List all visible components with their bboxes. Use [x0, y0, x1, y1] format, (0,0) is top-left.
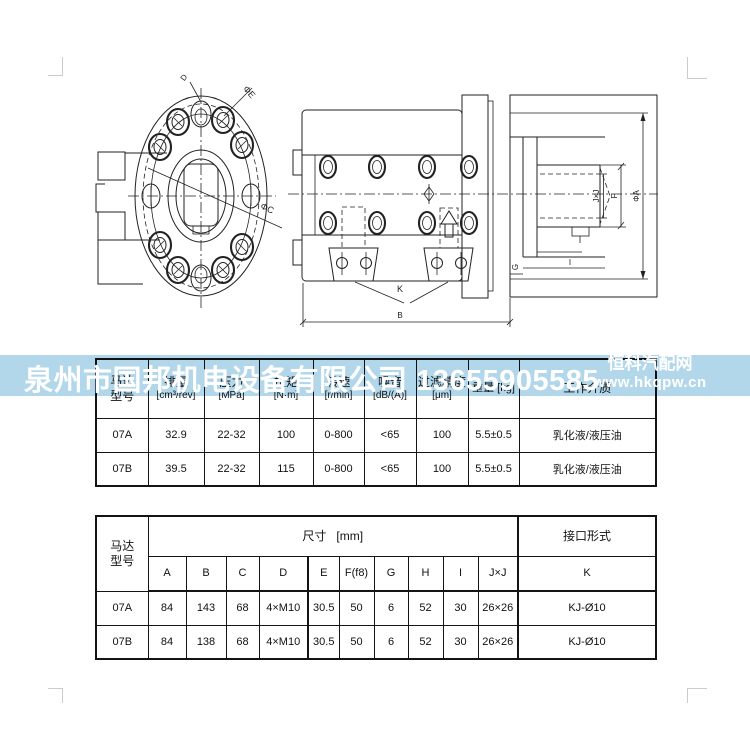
cell-B: 138: [186, 625, 226, 659]
header-unit: [r/min]: [325, 390, 353, 403]
dim-header-row-1: 马达型号 尺寸[mm] 接口形式: [96, 516, 656, 556]
cell-torque: 115: [259, 452, 313, 486]
dim-label-d: D: [179, 72, 190, 82]
header-text: 重量 [kg]: [472, 382, 515, 396]
cell-model: 07B: [96, 625, 148, 659]
header-unit: [MPa]: [218, 390, 244, 403]
cell-F: 50: [339, 625, 374, 659]
cell-G: 6: [374, 591, 408, 625]
cell-F: 50: [339, 591, 374, 625]
column-header-weight: 重量 [kg]: [468, 359, 519, 418]
cell-JxJ: 26×26: [478, 625, 518, 659]
cell-filtration: 100: [416, 418, 468, 452]
cell-noise: <65: [364, 452, 416, 486]
header-unit: [cm³/rev]: [157, 390, 196, 403]
bolt-hole: [167, 109, 189, 135]
cell-noise: <65: [364, 418, 416, 452]
column-header-B: B: [186, 556, 226, 591]
spec-header-row: 马达型号 排量[cm³/rev] 压力[MPa] 扭矩[N·m] 转速[r/mi…: [96, 359, 656, 418]
bolt-hole: [167, 257, 189, 283]
column-header-displacement: 排量[cm³/rev]: [148, 359, 204, 418]
end-view: J×J F ΦA G I: [510, 95, 657, 297]
header-unit: [μm]: [432, 390, 452, 403]
header-text: 压力: [219, 375, 243, 390]
header-unit: [mm]: [336, 529, 363, 544]
cell-displacement: 39.5: [148, 452, 204, 486]
cell-medium: 乳化液/液压油: [519, 452, 656, 486]
dim-label-f: F: [610, 193, 619, 198]
header-text: 型号: [110, 389, 134, 404]
column-header-pressure: 压力[MPa]: [204, 359, 259, 418]
cell-model: 07B: [96, 452, 148, 486]
cell-D: 4×M10: [259, 625, 308, 659]
cell-C: 68: [226, 591, 259, 625]
header-text: 扭矩: [274, 375, 298, 390]
cell-K: KJ-Ø10: [518, 591, 656, 625]
column-header-JxJ: J×J: [478, 556, 518, 591]
dim-label-phi-c: ΦC: [259, 201, 276, 216]
dim-label-phi-e: ΦE: [241, 84, 257, 100]
dim-row-07A: 07A 84 143 68 4×M10 30.5 50 6 52 30 26×2…: [96, 591, 656, 625]
dim-label-phi-a: ΦA: [632, 189, 641, 201]
header-text: 尺寸: [302, 529, 326, 544]
header-text: 马达: [110, 374, 134, 389]
column-header-G: G: [374, 556, 408, 591]
cell-weight: 5.5±0.5: [468, 452, 519, 486]
column-header-E: E: [308, 556, 339, 591]
dim-row-07B: 07B 84 138 68 4×M10 30.5 50 6 52 30 26×2…: [96, 625, 656, 659]
cell-B: 143: [186, 591, 226, 625]
column-header-C: C: [226, 556, 259, 591]
dim-label-i: I: [569, 258, 571, 267]
cell-H: 52: [408, 591, 443, 625]
cell-torque: 100: [259, 418, 313, 452]
cell-medium: 乳化液/液压油: [519, 418, 656, 452]
header-text: 型号: [110, 554, 134, 569]
cell-speed: 0-800: [313, 452, 364, 486]
header-unit: [dB/(A)]: [373, 390, 407, 403]
cell-model: 07A: [96, 591, 148, 625]
cell-JxJ: 26×26: [478, 591, 518, 625]
column-header-K: K: [518, 556, 656, 591]
column-header-model: 马达型号: [96, 516, 148, 591]
cell-pressure: 22-32: [204, 452, 259, 486]
spec-row-07A: 07A 32.9 22-32 100 0-800 <65 100 5.5±0.5…: [96, 418, 656, 452]
header-unit: [N·m]: [274, 390, 298, 403]
cell-E: 30.5: [308, 625, 339, 659]
header-text: 马达: [110, 539, 134, 554]
bolt-hole: [212, 257, 234, 283]
cell-K: KJ-Ø10: [518, 625, 656, 659]
dim-header-row-2: A B C D E F(f8) G H I J×J K: [96, 556, 656, 591]
column-header-speed: 转速[r/min]: [313, 359, 364, 418]
header-text: 排量: [164, 375, 188, 390]
front-view: ΦC ΦE D: [96, 72, 282, 308]
spec-row-07B: 07B 39.5 22-32 115 0-800 <65 100 5.5±0.5…: [96, 452, 656, 486]
dimension-table: 马达型号 尺寸[mm] 接口形式 A B C D E F(f8) G H I J…: [95, 515, 657, 660]
column-header-noise: 噪音[dB/(A)]: [364, 359, 416, 418]
column-header-size: 尺寸[mm]: [148, 516, 518, 556]
cell-C: 68: [226, 625, 259, 659]
cell-I: 30: [443, 625, 478, 659]
cell-E: 30.5: [308, 591, 339, 625]
cell-weight: 5.5±0.5: [468, 418, 519, 452]
cell-D: 4×M10: [259, 591, 308, 625]
column-header-filtration: 过滤精度[μm]: [416, 359, 468, 418]
column-header-H: H: [408, 556, 443, 591]
cell-filtration: 100: [416, 452, 468, 486]
cell-I: 30: [443, 591, 478, 625]
column-header-port-type: 接口形式: [518, 516, 656, 556]
cell-displacement: 32.9: [148, 418, 204, 452]
cell-G: 6: [374, 625, 408, 659]
bolt-side: [320, 156, 477, 234]
cell-A: 84: [148, 591, 186, 625]
cell-pressure: 22-32: [204, 418, 259, 452]
rotation-arrow-icon: [441, 211, 457, 237]
header-text: 工作介质: [563, 381, 611, 396]
dim-label-b: B: [397, 311, 402, 320]
column-header-torque: 扭矩[N·m]: [259, 359, 313, 418]
cell-model: 07A: [96, 418, 148, 452]
dim-label-k: K: [397, 284, 403, 294]
column-header-model: 马达型号: [96, 359, 148, 418]
side-view: K B: [288, 95, 658, 327]
header-text: 过滤精度: [418, 375, 466, 390]
column-header-A: A: [148, 556, 186, 591]
column-header-I: I: [443, 556, 478, 591]
dim-label-g: G: [511, 264, 520, 270]
performance-spec-table: 马达型号 排量[cm³/rev] 压力[MPa] 扭矩[N·m] 转速[r/mi…: [95, 358, 657, 487]
header-text: 转速: [326, 375, 350, 390]
cell-H: 52: [408, 625, 443, 659]
dim-label-jxj: J×J: [592, 190, 601, 203]
cell-speed: 0-800: [313, 418, 364, 452]
header-text: 接口形式: [563, 529, 611, 544]
header-text: 噪音: [378, 375, 402, 390]
column-header-F: F(f8): [339, 556, 374, 591]
column-header-D: D: [259, 556, 308, 591]
cell-A: 84: [148, 625, 186, 659]
datasheet-page: { "watermark": { "company": "泉州市国邦机电设备有限…: [0, 0, 750, 750]
column-header-medium: 工作介质: [519, 359, 656, 418]
